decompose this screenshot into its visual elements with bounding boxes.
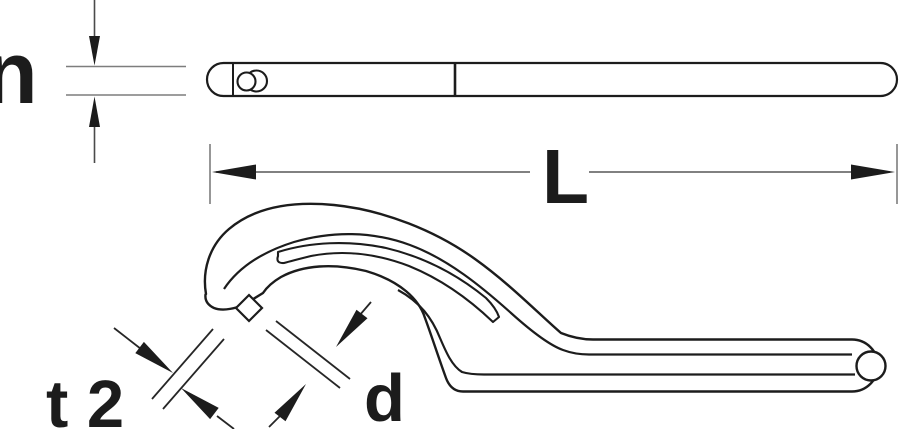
- dimension-n: n: [0, 0, 186, 163]
- dimension-d: d: [266, 302, 405, 429]
- d-arrowhead-upper-icon: [336, 310, 368, 347]
- L-arrow-right-icon: [851, 165, 895, 180]
- d-tick-line-2: [276, 321, 350, 379]
- pin-circle-left: [238, 73, 256, 91]
- t2-arrow-shaft-lower: [217, 416, 234, 429]
- hook-wrench-diagram: n L t 2: [0, 0, 900, 429]
- d-arrow-shaft-lower: [269, 415, 281, 427]
- n-arrow-up-icon: [89, 97, 100, 128]
- n-arrow-down-icon: [89, 36, 100, 66]
- d-arrowhead-lower-icon: [275, 384, 307, 421]
- handle-end-hole: [857, 352, 886, 381]
- side-view: [207, 63, 897, 96]
- t2-arrow-shaft-upper: [114, 328, 141, 349]
- drawing-canvas: n L t 2: [0, 0, 900, 429]
- d-label: d: [364, 361, 405, 429]
- wrench-outline: [205, 204, 878, 392]
- L-label: L: [542, 134, 589, 220]
- t2-arrowhead-upper-icon: [135, 342, 173, 373]
- t2-arrowhead-lower-icon: [181, 388, 219, 419]
- side-view-body: [207, 63, 897, 96]
- front-view: [205, 204, 886, 392]
- dimension-t2: t 2: [46, 328, 234, 429]
- n-label: n: [0, 23, 38, 122]
- L-arrow-left-icon: [212, 165, 256, 180]
- d-tick-line-1: [266, 330, 340, 388]
- t2-label: t 2: [46, 367, 124, 429]
